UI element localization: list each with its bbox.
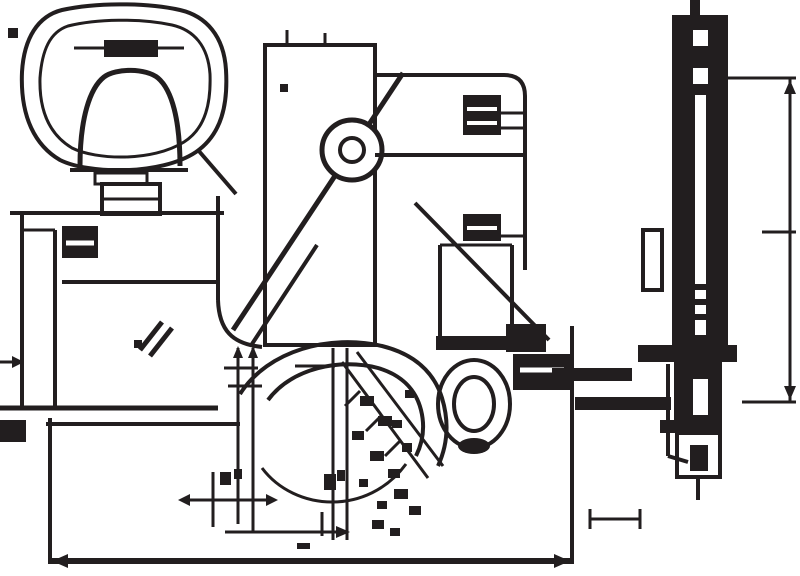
hose-connector (506, 324, 688, 462)
handle-plan-view (22, 4, 236, 214)
aerator-rings (438, 360, 510, 454)
diagonal-leader-annotations (342, 352, 443, 536)
bottom-dimension-cross (178, 469, 278, 527)
side-height-dimension (728, 78, 796, 402)
base-front-view (0, 196, 262, 442)
spout-front-block (375, 75, 525, 350)
pivot-circle (322, 120, 382, 180)
side-view (638, 0, 737, 500)
bottom-right-leader (590, 509, 640, 529)
left-dimension-verticals (224, 346, 347, 540)
faucet-technical-drawing (0, 0, 800, 576)
bottom-leader (225, 470, 350, 549)
technical-drawing-page (0, 0, 800, 576)
misc-marks (8, 28, 18, 38)
